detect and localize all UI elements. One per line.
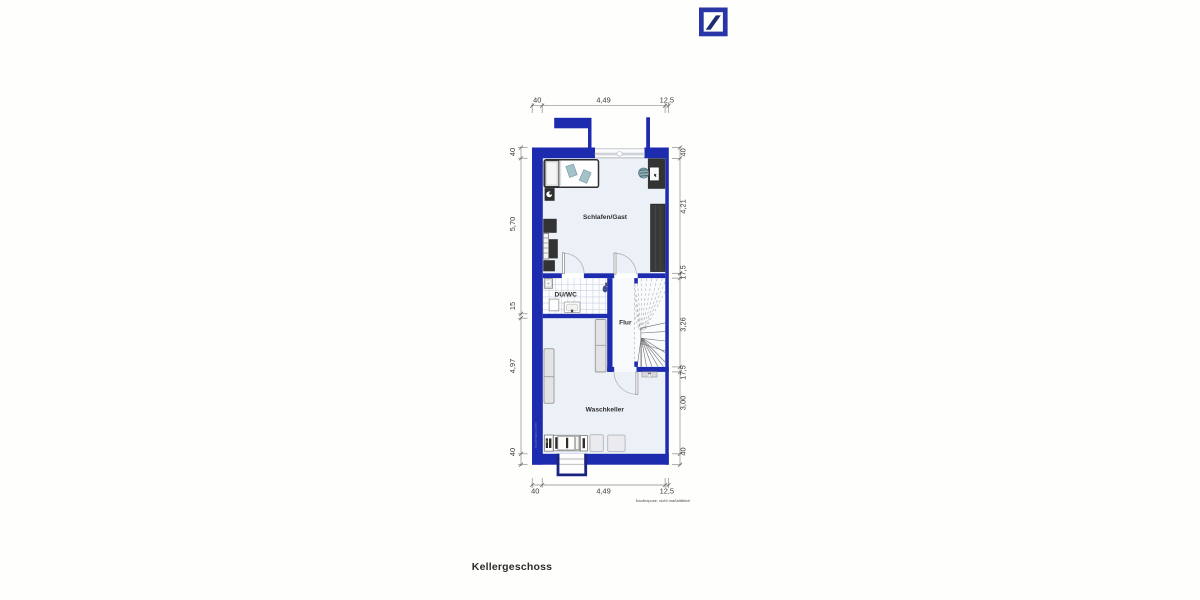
svg-text:40: 40	[531, 487, 539, 496]
svg-text:17,5: 17,5	[678, 265, 687, 279]
svg-text:Schlafen/Gast: Schlafen/Gast	[583, 214, 628, 221]
svg-text:3,26: 3,26	[678, 317, 687, 331]
svg-text:5,70: 5,70	[508, 217, 517, 231]
svg-text:Kaufexposé, nicht maßstäblich: Kaufexposé, nicht maßstäblich	[636, 498, 690, 503]
svg-text:40: 40	[678, 148, 687, 156]
svg-text:40: 40	[533, 96, 541, 105]
svg-text:4,49: 4,49	[596, 96, 610, 105]
svg-text:12,5: 12,5	[660, 96, 674, 105]
svg-text:DU/WC: DU/WC	[555, 292, 578, 299]
svg-text:17,5: 17,5	[678, 365, 687, 379]
svg-text:Flur: Flur	[619, 320, 632, 327]
svg-text:3,00: 3,00	[678, 396, 687, 410]
svg-text:40: 40	[508, 148, 517, 156]
svg-text:40: 40	[508, 448, 517, 456]
svg-text:40: 40	[678, 447, 687, 455]
svg-text:4,97: 4,97	[508, 359, 517, 373]
svg-text:12,5: 12,5	[660, 487, 674, 496]
svg-text:4,49: 4,49	[596, 487, 610, 496]
svg-text:4,21: 4,21	[678, 199, 687, 213]
svg-text:15: 15	[508, 302, 517, 310]
svg-text:Kellergeschoss: Kellergeschoss	[472, 561, 552, 573]
svg-text:Waschkeller: Waschkeller	[586, 407, 625, 414]
svg-text:Musterhaus Keller: Musterhaus Keller	[534, 421, 538, 448]
